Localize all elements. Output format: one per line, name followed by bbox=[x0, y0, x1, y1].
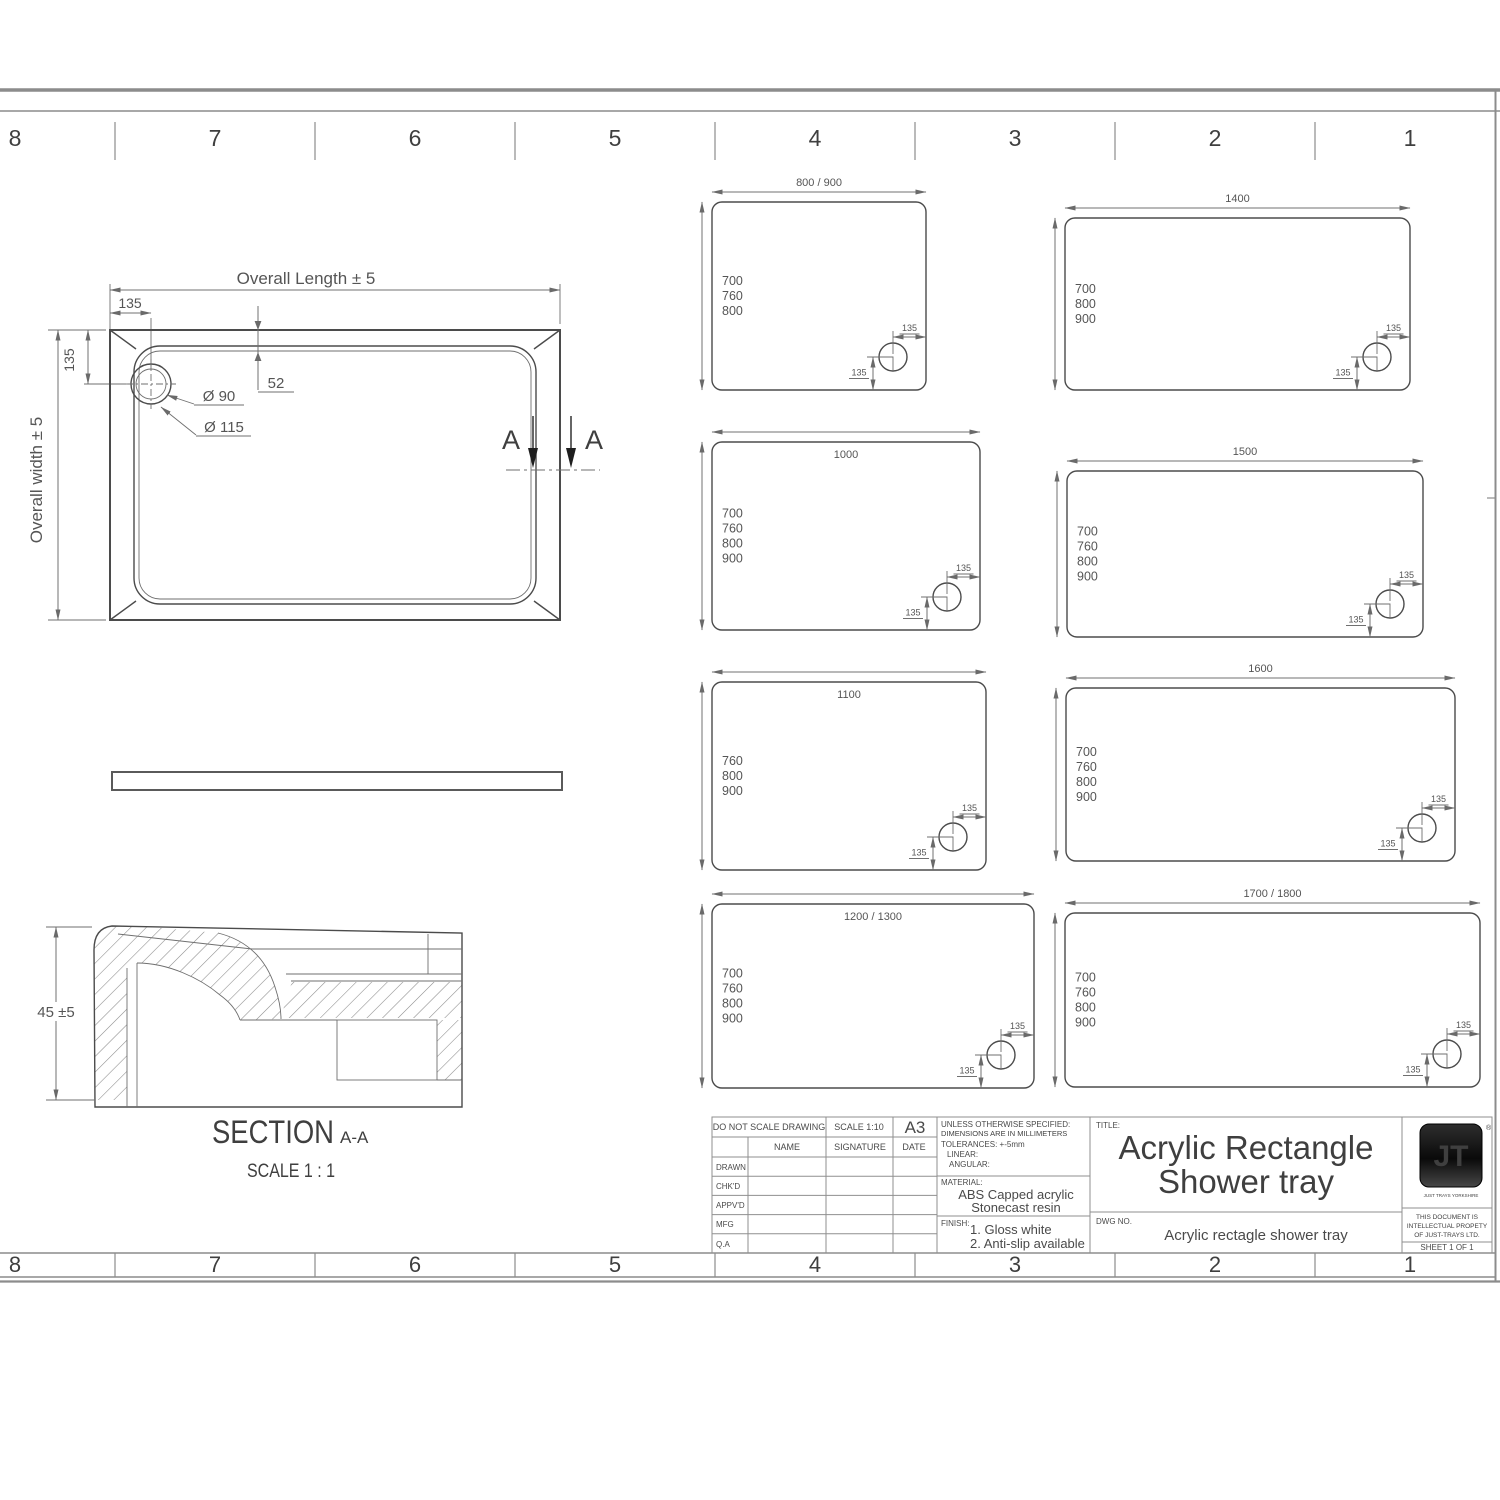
title-block: DO NOT SCALE DRAWING SCALE 1:10 A3 NAME … bbox=[712, 1117, 1492, 1253]
tray-width-option: 700 bbox=[722, 274, 743, 288]
tray-width-option: 800 bbox=[1077, 555, 1098, 569]
tray-inner-rim2 bbox=[139, 351, 531, 599]
property-line2: INTELLECTUAL PROPETY bbox=[1407, 1223, 1488, 1230]
ruler-top: 87654321 bbox=[9, 122, 1417, 160]
row-drawn: DRAWN bbox=[716, 1163, 746, 1172]
drain-offset-x-label: 135 bbox=[962, 803, 977, 813]
corner-chamfer bbox=[110, 601, 136, 620]
spec-line5: ANGULAR: bbox=[949, 1160, 990, 1169]
spec-line3: TOLERANCES: +-5mm bbox=[941, 1140, 1025, 1149]
leader-line bbox=[167, 395, 194, 404]
row-mfg: MFG bbox=[716, 1220, 734, 1229]
tray-width-option: 800 bbox=[722, 537, 743, 551]
tray-outline bbox=[1065, 218, 1410, 390]
finish-line1: 1. Gloss white bbox=[970, 1222, 1052, 1237]
tray-diagram: 1700 / 1800700760800900135135 bbox=[1055, 888, 1480, 1087]
zone-label-top: 6 bbox=[409, 125, 422, 151]
dwg-no-value: Acrylic rectagle shower tray bbox=[1164, 1227, 1348, 1244]
zone-label-bottom: 8 bbox=[9, 1252, 21, 1277]
registered-mark-icon: ® bbox=[1486, 1124, 1492, 1132]
overall-length-label: Overall Length ± 5 bbox=[237, 269, 376, 288]
zone-label-bottom: 3 bbox=[1009, 1252, 1021, 1277]
drain-offset-y-label: 135 bbox=[61, 348, 77, 372]
tray-width-option: 900 bbox=[1076, 790, 1097, 804]
side-view bbox=[112, 772, 562, 790]
drain-offset-x-label: 135 bbox=[956, 563, 971, 573]
col-name: NAME bbox=[774, 1142, 800, 1152]
spec-line4: LINEAR: bbox=[947, 1150, 978, 1159]
tray-outline bbox=[712, 682, 986, 870]
drain-offset-x-label: 135 bbox=[118, 295, 142, 311]
hatch-left-wall bbox=[94, 926, 140, 1100]
tray-length-label: 1500 bbox=[1233, 446, 1257, 458]
sheet-count: SHEET 1 OF 1 bbox=[1420, 1243, 1474, 1252]
plan-view: Overall Length ± 5 Overall width ± 5 135… bbox=[27, 269, 603, 620]
tray-width-option: 800 bbox=[1075, 297, 1096, 311]
tray-width-option: 700 bbox=[1076, 745, 1097, 759]
section-letter-left: A bbox=[502, 425, 520, 455]
tray-length-label: 1600 bbox=[1248, 663, 1272, 675]
tray-diagram: 800 / 900700760800135135 bbox=[702, 177, 926, 390]
row-chkd: CHK'D bbox=[716, 1182, 740, 1191]
waste-inner-dia-label: Ø 90 bbox=[203, 388, 236, 405]
section-arrow-down-icon bbox=[566, 448, 576, 468]
finish-label: FINISH: bbox=[941, 1219, 969, 1228]
tray-width-option: 800 bbox=[1076, 775, 1097, 789]
logo-jt-icon: JT bbox=[1433, 1140, 1468, 1173]
drain-offset-y-label: 135 bbox=[1348, 615, 1363, 625]
rim-height-label: 52 bbox=[268, 375, 285, 392]
ruler-bottom: 87654321 bbox=[9, 1252, 1416, 1277]
do-not-scale-note: DO NOT SCALE DRAWING bbox=[713, 1122, 826, 1132]
tray-length-label: 1700 / 1800 bbox=[1243, 888, 1301, 900]
tray-width-option: 900 bbox=[1077, 570, 1098, 584]
zone-label-top: 8 bbox=[9, 125, 22, 151]
tray-width-option: 760 bbox=[1077, 540, 1098, 554]
zone-label-bottom: 7 bbox=[209, 1252, 221, 1277]
drain-offset-y-label: 135 bbox=[959, 1066, 974, 1076]
title-label: TITLE: bbox=[1096, 1121, 1120, 1130]
drawing-title-line2: Shower tray bbox=[1158, 1163, 1335, 1200]
tray-width-option: 760 bbox=[1076, 760, 1097, 774]
tray-length-label: 1400 bbox=[1225, 193, 1249, 205]
zone-label-bottom: 6 bbox=[409, 1252, 421, 1277]
drain-offset-x-label: 135 bbox=[1399, 570, 1414, 580]
section-title: SECTION bbox=[212, 1114, 334, 1150]
tray-diagram: 1500700760800900135135 bbox=[1057, 446, 1423, 637]
section-scale-note: SCALE 1 : 1 bbox=[247, 1161, 335, 1182]
tray-outline bbox=[1066, 688, 1455, 861]
section-title-suffix: A-A bbox=[340, 1128, 369, 1147]
logo-tagline: JUST TRAYS YORKSHIRE bbox=[1424, 1193, 1479, 1198]
hatch-right-block bbox=[437, 1020, 462, 1080]
tray-outline bbox=[712, 904, 1034, 1088]
tray-diagram: 1000700760800900135135 bbox=[702, 432, 980, 630]
drain-offset-x-label: 135 bbox=[1386, 323, 1401, 333]
leader-line bbox=[161, 407, 196, 435]
arrowhead bbox=[255, 352, 262, 361]
tray-width-option: 900 bbox=[722, 784, 743, 798]
tray-width-option: 700 bbox=[722, 967, 743, 981]
corner-chamfer bbox=[534, 330, 560, 349]
drain-offset-x-label: 135 bbox=[902, 323, 917, 333]
drain-offset-y-label: 135 bbox=[905, 608, 920, 618]
drain-offset-y-label: 135 bbox=[851, 368, 866, 378]
tray-length-label: 800 / 900 bbox=[796, 177, 842, 189]
drain-offset-y-label: 135 bbox=[1380, 839, 1395, 849]
row-qa: Q.A bbox=[716, 1240, 730, 1249]
drawing-title-line1: Acrylic Rectangle bbox=[1119, 1129, 1374, 1166]
spec-line1: UNLESS OTHERWISE SPECIFIED: bbox=[941, 1120, 1070, 1129]
corner-chamfer bbox=[110, 330, 136, 349]
tray-width-option: 800 bbox=[722, 997, 743, 1011]
sheet-frame bbox=[0, 90, 1500, 1282]
zone-label-bottom: 4 bbox=[809, 1252, 821, 1277]
zone-label-top: 3 bbox=[1009, 125, 1022, 151]
row-appvd: APPV'D bbox=[716, 1201, 745, 1210]
zone-label-top: 5 bbox=[609, 125, 622, 151]
leg-pocket bbox=[337, 1020, 437, 1080]
tray-diagram: 1600700760800900135135 bbox=[1056, 663, 1455, 861]
waste-outer-dia-label: Ø 115 bbox=[204, 419, 244, 436]
zone-label-bottom: 5 bbox=[609, 1252, 621, 1277]
tray-width-option: 900 bbox=[722, 552, 743, 566]
tray-width-option: 800 bbox=[722, 304, 743, 318]
drawing-sheet: 87654321 87654321 Overall Length ± 5 Ove… bbox=[0, 0, 1500, 1500]
tray-outer-edge bbox=[110, 330, 560, 620]
tray-width-option: 900 bbox=[1075, 1016, 1096, 1030]
tray-diagram: 1100760800900135135 bbox=[702, 672, 986, 870]
spec-line2: DIMENSIONS ARE IN MILLIMETERS bbox=[941, 1129, 1067, 1138]
drain-offset-x-label: 135 bbox=[1456, 1020, 1471, 1030]
section-view: 45 ±5 SECTION A-A SCALE 1 : 1 bbox=[32, 926, 462, 1182]
corner-chamfer bbox=[534, 601, 560, 620]
tray-width-option: 700 bbox=[1075, 282, 1096, 296]
zone-label-top: 7 bbox=[209, 125, 222, 151]
drain-offset-y-label: 135 bbox=[911, 848, 926, 858]
tray-width-option: 800 bbox=[722, 769, 743, 783]
scale-note: SCALE 1:10 bbox=[834, 1122, 884, 1132]
dwg-no-label: DWG NO. bbox=[1096, 1217, 1132, 1226]
tray-outline bbox=[1065, 913, 1480, 1087]
tray-length-label: 1200 / 1300 bbox=[844, 911, 902, 923]
hatch-floor-band bbox=[281, 982, 462, 1018]
paper-size: A3 bbox=[905, 1118, 926, 1137]
col-signature: SIGNATURE bbox=[834, 1142, 886, 1152]
company-logo: JT ® JUST TRAYS YORKSHIRE bbox=[1420, 1124, 1492, 1198]
zone-label-bottom: 2 bbox=[1209, 1252, 1221, 1277]
tray-inner-rim bbox=[134, 346, 536, 604]
drain-offset-y-label: 135 bbox=[1405, 1065, 1420, 1075]
tray-width-option: 760 bbox=[722, 289, 743, 303]
drain-offset-x-label: 135 bbox=[1010, 1021, 1025, 1031]
zone-label-bottom: 1 bbox=[1404, 1252, 1416, 1277]
drain-offset-y-label: 135 bbox=[1335, 368, 1350, 378]
finish-line2: 2. Anti-slip available bbox=[970, 1236, 1085, 1251]
tray-width-option: 900 bbox=[1075, 312, 1096, 326]
property-line3: OF JUST-TRAYS LTD. bbox=[1414, 1232, 1480, 1239]
zone-label-top: 4 bbox=[809, 125, 822, 151]
tray-width-option: 800 bbox=[1075, 1001, 1096, 1015]
zone-label-top: 1 bbox=[1404, 125, 1417, 151]
tray-size-diagrams: 800 / 9007007608001351351000700760800900… bbox=[702, 177, 1480, 1088]
tray-diagram: 1200 / 1300700760800900135135 bbox=[702, 894, 1034, 1088]
tray-length-label: 1100 bbox=[837, 689, 861, 701]
section-height-label: 45 ±5 bbox=[37, 1004, 74, 1021]
tray-width-option: 760 bbox=[722, 982, 743, 996]
tray-outline bbox=[712, 442, 980, 630]
tray-width-option: 900 bbox=[722, 1012, 743, 1026]
side-view-profile bbox=[112, 772, 562, 790]
tray-width-option: 760 bbox=[1075, 986, 1096, 1000]
col-date: DATE bbox=[902, 1142, 925, 1152]
tray-length-label: 1000 bbox=[834, 449, 858, 461]
tray-width-option: 760 bbox=[722, 754, 743, 768]
hatch-step bbox=[140, 926, 281, 1020]
zone-label-top: 2 bbox=[1209, 125, 1222, 151]
tray-width-option: 700 bbox=[1075, 971, 1096, 985]
tray-diagram: 1400700800900135135 bbox=[1055, 193, 1410, 390]
material-line2: Stonecast resin bbox=[971, 1200, 1061, 1215]
tray-width-option: 760 bbox=[722, 522, 743, 536]
drain-offset-x-label: 135 bbox=[1431, 794, 1446, 804]
tray-width-option: 700 bbox=[1077, 525, 1098, 539]
arrowhead bbox=[255, 321, 262, 330]
section-letter-right: A bbox=[585, 425, 603, 455]
property-line1: THIS DOCUMENT IS bbox=[1416, 1214, 1479, 1221]
tray-width-option: 700 bbox=[722, 507, 743, 521]
material-label: MATERIAL: bbox=[941, 1178, 983, 1187]
tray-outline bbox=[712, 202, 926, 390]
overall-width-label: Overall width ± 5 bbox=[27, 417, 46, 544]
